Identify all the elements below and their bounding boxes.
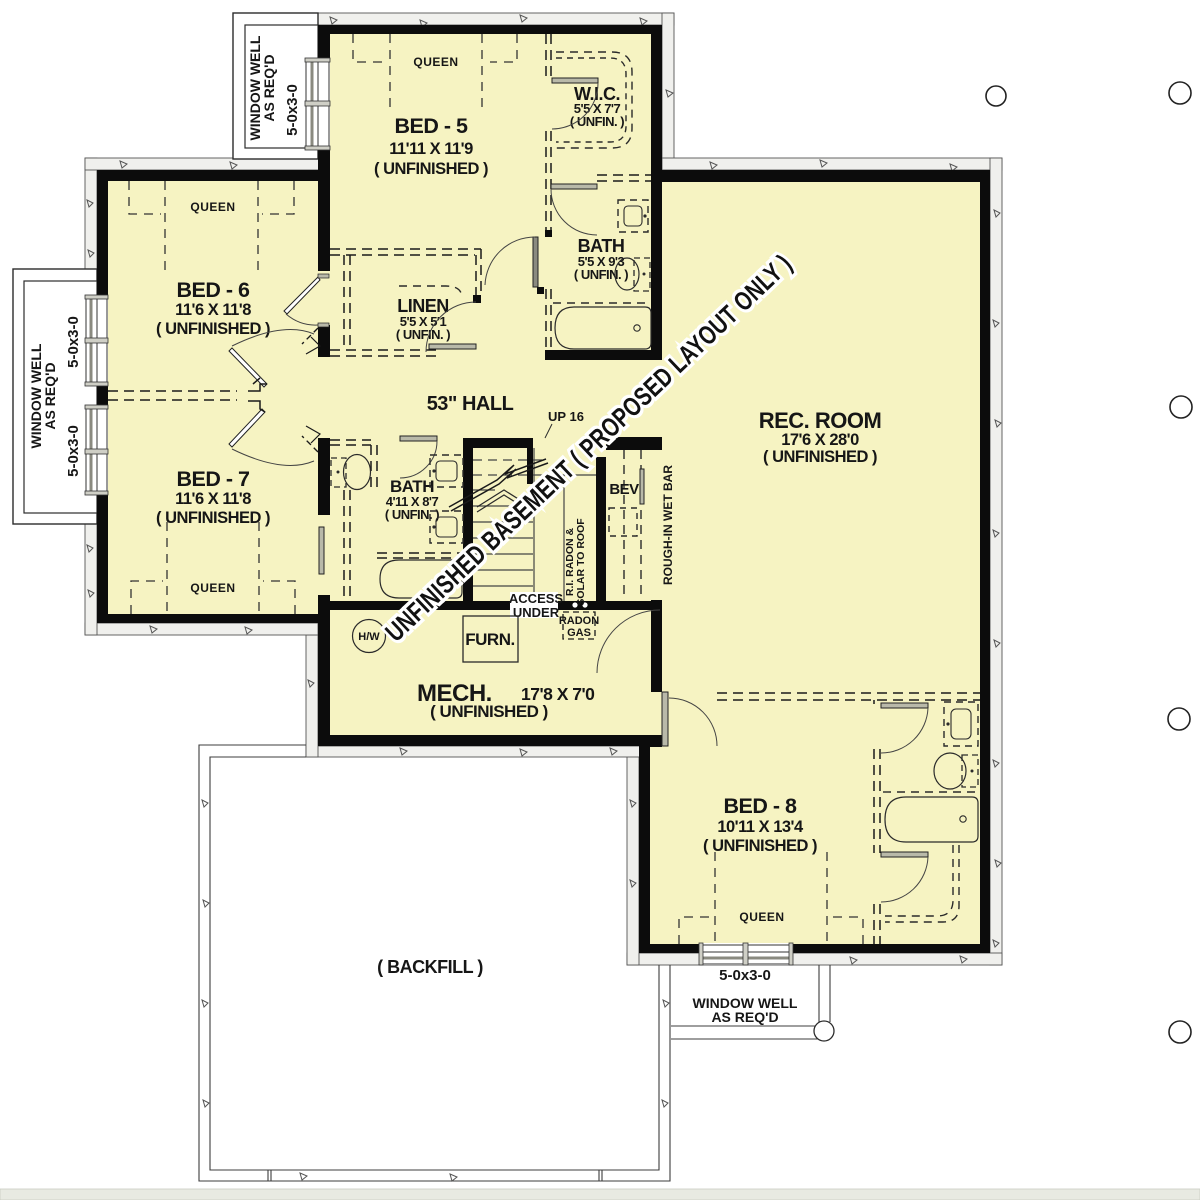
svg-text:BEV: BEV: [609, 481, 639, 498]
svg-text:5-0x3-0: 5-0x3-0: [719, 967, 771, 984]
svg-text:AS REQ'D: AS REQ'D: [42, 362, 58, 429]
svg-text:10'11 X 13'4: 10'11 X 13'4: [717, 818, 804, 836]
svg-text:( UNFINISHED ): ( UNFINISHED ): [156, 509, 270, 527]
svg-text:( UNFINISHED ): ( UNFINISHED ): [374, 160, 488, 178]
svg-text:QUEEN: QUEEN: [190, 581, 235, 595]
svg-text:BED - 5: BED - 5: [395, 114, 469, 138]
svg-text:( UNFINISHED ): ( UNFINISHED ): [763, 448, 877, 466]
svg-text:( UNFIN. ): ( UNFIN. ): [396, 327, 450, 342]
svg-text:( UNFINISHED ): ( UNFINISHED ): [156, 320, 270, 338]
svg-text:( UNFIN. ): ( UNFIN. ): [574, 267, 628, 282]
svg-text:H/W: H/W: [358, 631, 380, 643]
svg-text:5-0x3-0: 5-0x3-0: [65, 425, 82, 477]
svg-text:QUEEN: QUEEN: [190, 200, 235, 214]
svg-text:FURN.: FURN.: [465, 630, 514, 649]
svg-text:UNDER: UNDER: [513, 605, 560, 620]
svg-text:5-0x3-0: 5-0x3-0: [284, 84, 301, 136]
svg-text:ACCESS: ACCESS: [509, 591, 564, 606]
svg-text:UP 16: UP 16: [548, 409, 584, 424]
svg-text:GAS: GAS: [567, 627, 591, 639]
svg-text:BATH: BATH: [578, 236, 625, 256]
svg-text:AS REQ'D: AS REQ'D: [261, 54, 277, 121]
svg-text:17'6 X 28'0: 17'6 X 28'0: [781, 431, 859, 449]
svg-text:11'6 X 11'8: 11'6 X 11'8: [175, 490, 251, 508]
svg-text:REC. ROOM: REC. ROOM: [759, 408, 882, 433]
svg-text:( UNFINISHED ): ( UNFINISHED ): [430, 702, 548, 721]
svg-text:RADON: RADON: [559, 615, 599, 627]
svg-text:QUEEN: QUEEN: [739, 910, 784, 924]
svg-text:( UNFINISHED ): ( UNFINISHED ): [703, 837, 817, 855]
svg-text:QUEEN: QUEEN: [413, 55, 458, 69]
svg-text:BED - 6: BED - 6: [177, 278, 251, 302]
svg-text:( BACKFILL ): ( BACKFILL ): [377, 957, 483, 977]
svg-text:BED - 7: BED - 7: [177, 467, 251, 491]
svg-text:AS REQ'D: AS REQ'D: [711, 1009, 778, 1025]
svg-text:17'8 X 7'0: 17'8 X 7'0: [521, 684, 595, 704]
svg-text:5-0x3-0: 5-0x3-0: [65, 316, 82, 368]
svg-text:BED - 8: BED - 8: [724, 794, 798, 818]
svg-text:11'6 X 11'8: 11'6 X 11'8: [175, 301, 251, 319]
svg-text:53" HALL: 53" HALL: [427, 393, 514, 415]
svg-text:( UNFIN. ): ( UNFIN. ): [385, 507, 439, 522]
svg-text:11'11 X 11'9: 11'11 X 11'9: [389, 140, 473, 158]
svg-text:LINEN: LINEN: [397, 296, 449, 316]
svg-text:ROUGH-IN WET BAR: ROUGH-IN WET BAR: [661, 465, 675, 585]
svg-text:SOLAR TO ROOF: SOLAR TO ROOF: [575, 518, 587, 606]
